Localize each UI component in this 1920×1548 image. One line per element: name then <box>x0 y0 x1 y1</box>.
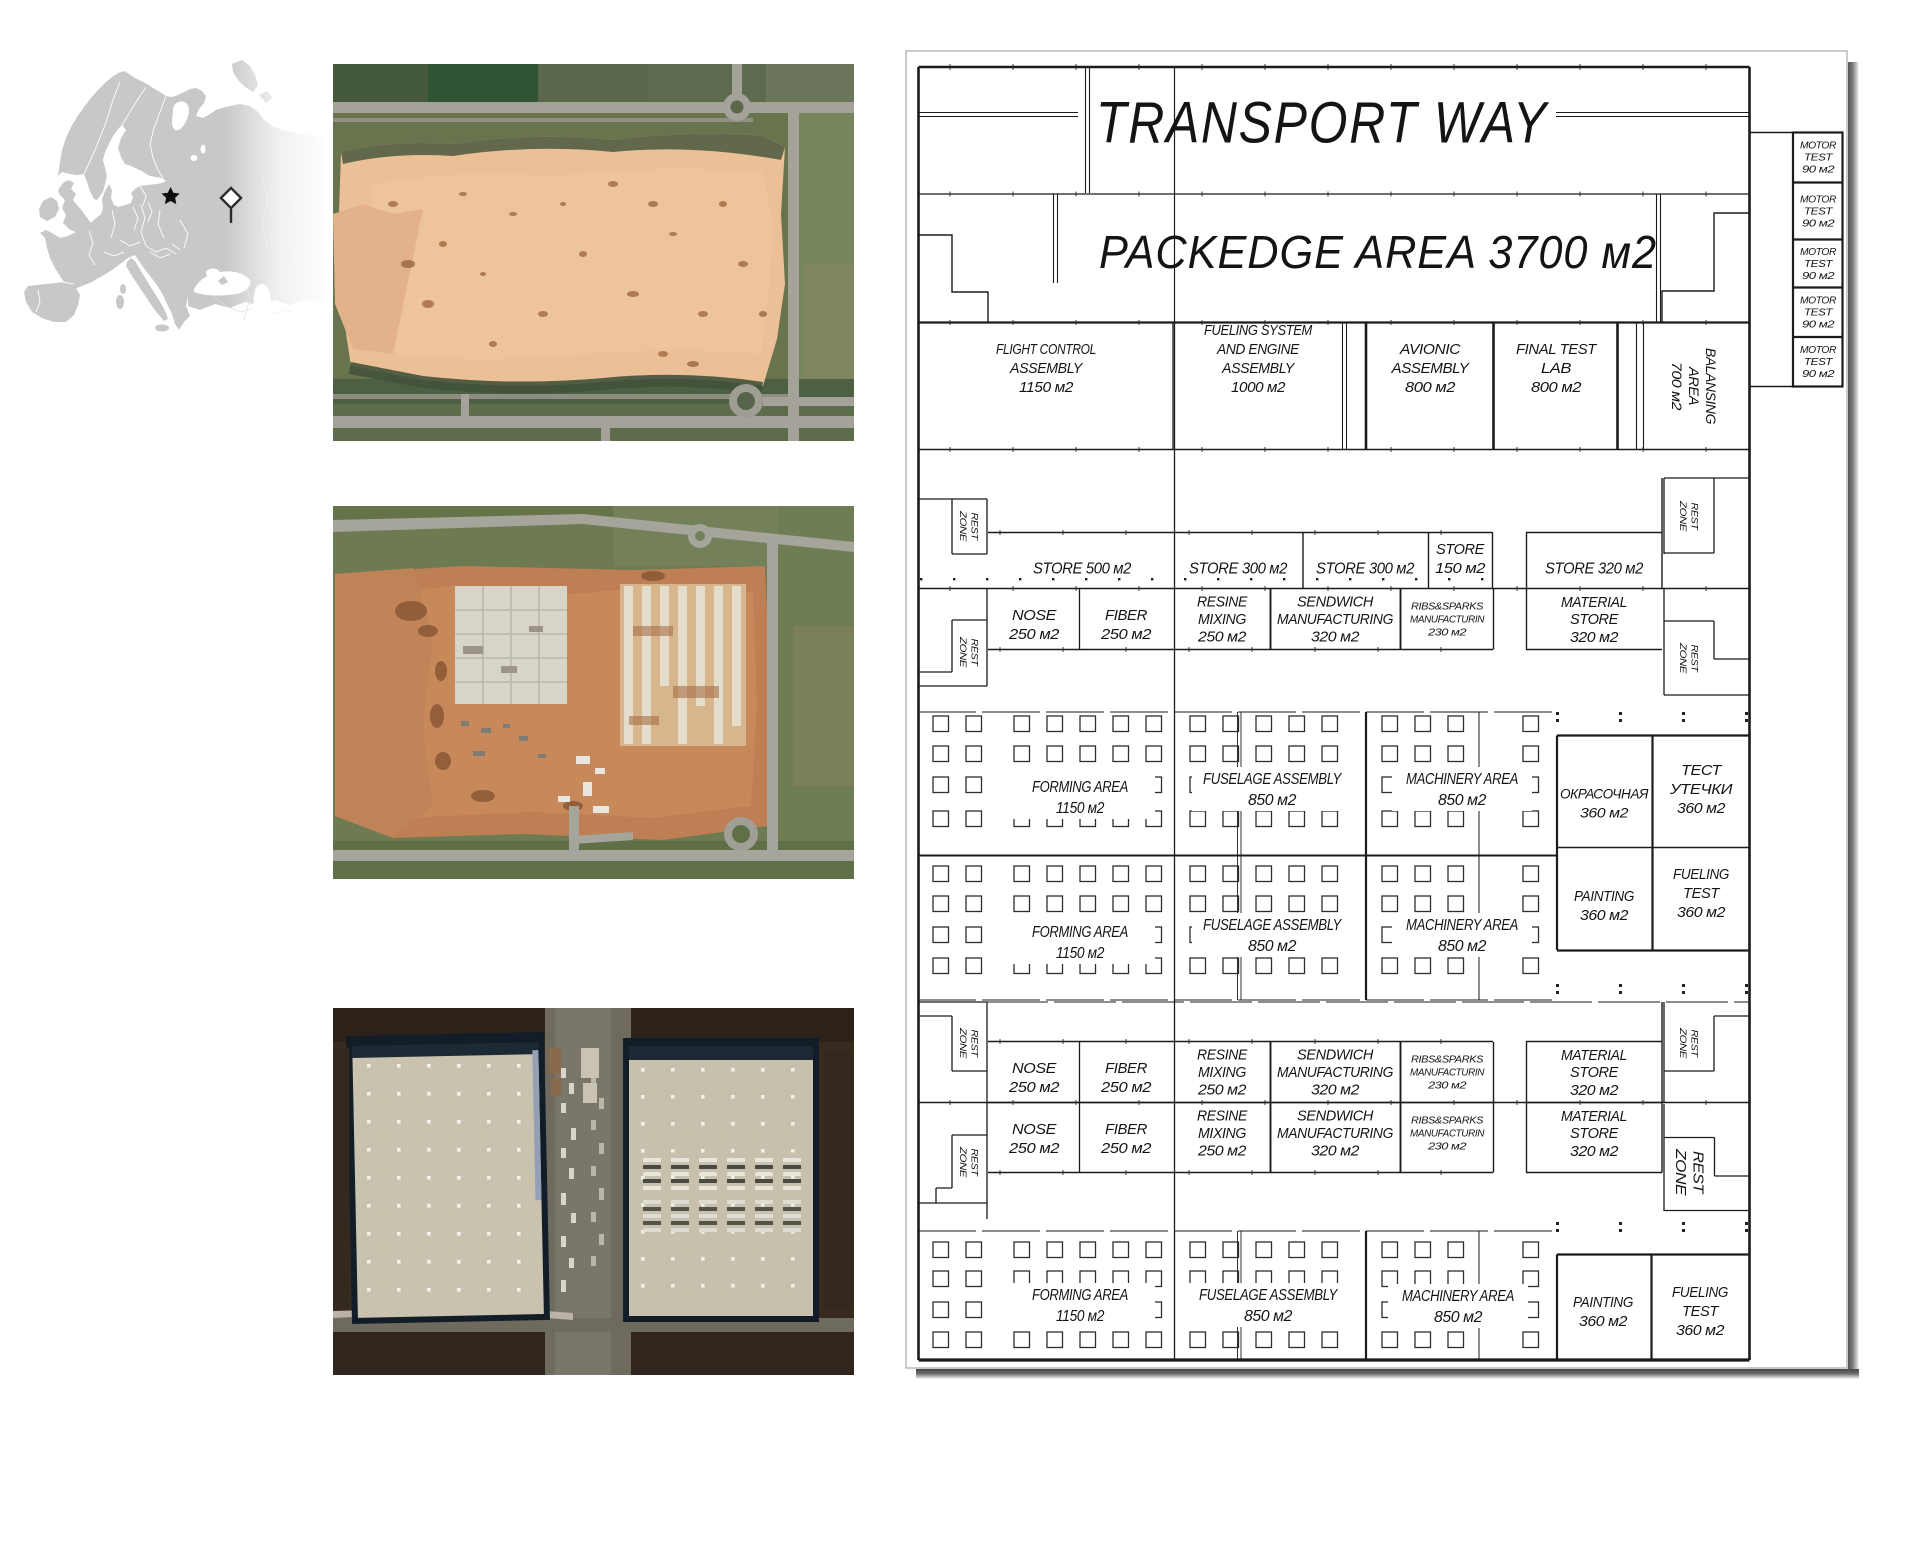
svg-text:MACHINERY AREA: MACHINERY AREA <box>1402 1288 1514 1305</box>
svg-text:360 м2: 360 м2 <box>1677 800 1726 817</box>
svg-text:ОКРАСОЧНАЯ: ОКРАСОЧНАЯ <box>1560 785 1649 801</box>
svg-text:MIXING: MIXING <box>1198 612 1246 628</box>
svg-text:FIBER: FIBER <box>1105 1121 1148 1138</box>
svg-text:800 м2: 800 м2 <box>1531 379 1582 396</box>
svg-text:AND ENGINE: AND ENGINE <box>1216 341 1300 358</box>
svg-text:850 м2: 850 м2 <box>1438 792 1487 809</box>
svg-text:850 м2: 850 м2 <box>1434 1309 1483 1326</box>
svg-text:FORMING AREA: FORMING AREA <box>1032 779 1128 796</box>
svg-text:90 м2: 90 м2 <box>1802 271 1835 282</box>
svg-text:700 м2: 700 м2 <box>1669 362 1685 411</box>
svg-text:ZONE: ZONE <box>957 1146 968 1178</box>
svg-text:ZONE: ZONE <box>1677 500 1688 532</box>
svg-text:MANUFACTURIN: MANUFACTURIN <box>1410 614 1485 626</box>
svg-text:УТЕЧКИ: УТЕЧКИ <box>1669 781 1733 798</box>
svg-text:FUELING SYSTEM: FUELING SYSTEM <box>1204 322 1313 339</box>
svg-text:MATERIAL: MATERIAL <box>1561 594 1627 611</box>
svg-text:PACKEDGE AREA 3700 м2: PACKEDGE AREA 3700 м2 <box>1099 226 1657 278</box>
svg-text:1000 м2: 1000 м2 <box>1231 379 1286 396</box>
svg-text:320 м2: 320 м2 <box>1311 1144 1359 1160</box>
svg-text:FORMING AREA: FORMING AREA <box>1032 924 1128 941</box>
svg-text:FORMING AREA: FORMING AREA <box>1032 1287 1128 1304</box>
svg-text:STORE 300 м2: STORE 300 м2 <box>1189 560 1288 577</box>
svg-text:RESINE: RESINE <box>1197 1048 1248 1064</box>
svg-text:ASSEMBLY: ASSEMBLY <box>1221 360 1295 377</box>
svg-text:230 м2: 230 м2 <box>1427 1080 1467 1092</box>
svg-text:90 м2: 90 м2 <box>1802 369 1835 380</box>
svg-text:90 м2: 90 м2 <box>1802 165 1835 176</box>
svg-text:NOSE: NOSE <box>1012 607 1057 624</box>
svg-text:STORE: STORE <box>1436 541 1485 558</box>
svg-text:ТЕСТ: ТЕСТ <box>1681 762 1723 779</box>
svg-text:FUELING: FUELING <box>1673 866 1730 883</box>
svg-text:850 м2: 850 м2 <box>1248 792 1297 809</box>
svg-text:TRANSPORT WAY: TRANSPORT WAY <box>1096 90 1550 155</box>
svg-text:MATERIAL: MATERIAL <box>1561 1047 1627 1064</box>
svg-text:ZONE: ZONE <box>957 1027 968 1059</box>
svg-text:320 м2: 320 м2 <box>1570 629 1619 646</box>
svg-text:ZONE: ZONE <box>1677 642 1688 674</box>
svg-text:TEST: TEST <box>1804 308 1833 319</box>
svg-text:800 м2: 800 м2 <box>1405 379 1456 396</box>
svg-text:MATERIAL: MATERIAL <box>1561 1108 1627 1125</box>
svg-text:REST: REST <box>968 1149 979 1178</box>
svg-text:LAB: LAB <box>1541 360 1571 377</box>
svg-text:850 м2: 850 м2 <box>1438 938 1487 955</box>
svg-text:MANUFACTURIN: MANUFACTURIN <box>1410 1128 1485 1140</box>
svg-text:850 м2: 850 м2 <box>1248 938 1297 955</box>
svg-text:SENDWICH: SENDWICH <box>1297 1109 1374 1125</box>
svg-text:250 м2: 250 м2 <box>1197 1144 1246 1160</box>
svg-text:RIBS&SPARKS: RIBS&SPARKS <box>1411 1054 1483 1066</box>
svg-text:SENDWICH: SENDWICH <box>1297 595 1374 611</box>
svg-text:1150 м2: 1150 м2 <box>1056 1308 1105 1325</box>
svg-text:ASSEMBLY: ASSEMBLY <box>1009 360 1083 377</box>
svg-text:360 м2: 360 м2 <box>1580 907 1629 924</box>
svg-text:STORE 300 м2: STORE 300 м2 <box>1316 560 1415 577</box>
svg-text:250 м2: 250 м2 <box>1100 1079 1152 1096</box>
svg-text:RESINE: RESINE <box>1197 1109 1248 1125</box>
svg-text:360 м2: 360 м2 <box>1580 804 1629 820</box>
svg-text:MANUFACTURING: MANUFACTURING <box>1277 612 1393 628</box>
svg-text:ZONE: ZONE <box>1672 1148 1688 1196</box>
svg-text:TEST: TEST <box>1804 259 1833 270</box>
svg-text:REST: REST <box>1688 1030 1699 1059</box>
svg-text:PAINTING: PAINTING <box>1574 888 1635 905</box>
svg-text:360 м2: 360 м2 <box>1579 1313 1628 1330</box>
svg-text:230 м2: 230 м2 <box>1427 627 1467 639</box>
svg-text:RIBS&SPARKS: RIBS&SPARKS <box>1411 601 1483 613</box>
svg-text:FIBER: FIBER <box>1105 607 1148 624</box>
svg-text:1150 м2: 1150 м2 <box>1056 945 1105 962</box>
svg-text:REST: REST <box>968 513 979 542</box>
svg-text:90 м2: 90 м2 <box>1802 219 1835 230</box>
svg-text:MANUFACTURIN: MANUFACTURIN <box>1410 1067 1485 1079</box>
svg-text:250 м2: 250 м2 <box>1008 1140 1060 1157</box>
svg-text:AVIONIC: AVIONIC <box>1399 341 1461 358</box>
svg-text:TEST: TEST <box>1804 153 1833 164</box>
svg-text:360 м2: 360 м2 <box>1677 904 1726 921</box>
svg-text:STORE: STORE <box>1570 1064 1619 1081</box>
svg-text:ASSEMBLY: ASSEMBLY <box>1390 360 1469 377</box>
svg-text:REST: REST <box>1688 645 1699 674</box>
svg-text:MACHINERY AREA: MACHINERY AREA <box>1406 917 1518 934</box>
svg-text:REST: REST <box>968 1030 979 1059</box>
svg-text:REST: REST <box>968 639 979 668</box>
svg-text:TEST: TEST <box>1804 207 1833 218</box>
svg-text:320 м2: 320 м2 <box>1570 1143 1619 1160</box>
svg-text:250 м2: 250 м2 <box>1100 626 1152 643</box>
svg-text:MIXING: MIXING <box>1198 1126 1246 1142</box>
svg-text:90 м2: 90 м2 <box>1802 320 1835 331</box>
svg-text:320 м2: 320 м2 <box>1311 1083 1359 1099</box>
svg-text:150 м2: 150 м2 <box>1435 560 1486 577</box>
svg-text:250 м2: 250 м2 <box>1008 626 1060 643</box>
svg-text:ZONE: ZONE <box>957 510 968 542</box>
svg-text:1150 м2: 1150 м2 <box>1019 379 1074 396</box>
svg-text:FLIGHT CONTROL: FLIGHT CONTROL <box>996 341 1096 358</box>
svg-text:NOSE: NOSE <box>1012 1060 1057 1077</box>
svg-text:REST: REST <box>1690 1151 1706 1195</box>
svg-text:360 м2: 360 м2 <box>1676 1322 1725 1339</box>
svg-text:MOTOR: MOTOR <box>1800 195 1836 206</box>
svg-text:250 м2: 250 м2 <box>1197 630 1246 646</box>
svg-text:MANUFACTURING: MANUFACTURING <box>1277 1065 1393 1081</box>
svg-text:320 м2: 320 м2 <box>1570 1082 1619 1099</box>
svg-text:FUELING: FUELING <box>1672 1284 1729 1301</box>
svg-text:TEST: TEST <box>1804 357 1833 368</box>
svg-text:STORE 500 м2: STORE 500 м2 <box>1033 560 1132 577</box>
svg-text:AREA: AREA <box>1686 366 1702 405</box>
svg-text:RESINE: RESINE <box>1197 595 1248 611</box>
svg-text:250 м2: 250 м2 <box>1008 1079 1060 1096</box>
svg-text:250 м2: 250 м2 <box>1197 1083 1246 1099</box>
svg-text:MOTOR: MOTOR <box>1800 141 1836 152</box>
svg-text:850 м2: 850 м2 <box>1244 1308 1293 1325</box>
svg-text:STORE 320 м2: STORE 320 м2 <box>1545 560 1644 577</box>
svg-text:230 м2: 230 м2 <box>1427 1141 1467 1153</box>
svg-text:NOSE: NOSE <box>1012 1121 1057 1138</box>
svg-text:PAINTING: PAINTING <box>1573 1294 1634 1311</box>
svg-text:MOTOR: MOTOR <box>1800 247 1836 258</box>
svg-text:FUSELAGE ASSEMBLY: FUSELAGE ASSEMBLY <box>1199 1287 1339 1304</box>
svg-text:RIBS&SPARKS: RIBS&SPARKS <box>1411 1115 1483 1127</box>
svg-text:STORE: STORE <box>1570 611 1619 628</box>
svg-text:MOTOR: MOTOR <box>1800 345 1836 356</box>
svg-text:FINAL TEST: FINAL TEST <box>1516 341 1598 358</box>
svg-text:BALANSING: BALANSING <box>1703 348 1719 424</box>
svg-text:250 м2: 250 м2 <box>1100 1140 1152 1157</box>
svg-text:STORE: STORE <box>1570 1125 1619 1142</box>
svg-text:TEST: TEST <box>1683 885 1721 902</box>
svg-text:FUSELAGE ASSEMBLY: FUSELAGE ASSEMBLY <box>1203 771 1343 788</box>
svg-text:REST: REST <box>1688 503 1699 532</box>
svg-text:FIBER: FIBER <box>1105 1060 1148 1077</box>
svg-text:1150 м2: 1150 м2 <box>1056 800 1105 817</box>
svg-text:MACHINERY AREA: MACHINERY AREA <box>1406 771 1518 788</box>
svg-text:ZONE: ZONE <box>957 636 968 668</box>
svg-text:MOTOR: MOTOR <box>1800 296 1836 307</box>
svg-text:MIXING: MIXING <box>1198 1065 1246 1081</box>
svg-text:ZONE: ZONE <box>1677 1027 1688 1059</box>
svg-text:MANUFACTURING: MANUFACTURING <box>1277 1126 1393 1142</box>
svg-text:SENDWICH: SENDWICH <box>1297 1048 1374 1064</box>
svg-text:FUSELAGE ASSEMBLY: FUSELAGE ASSEMBLY <box>1203 917 1343 934</box>
svg-text:TEST: TEST <box>1682 1303 1720 1320</box>
svg-text:320 м2: 320 м2 <box>1311 630 1359 646</box>
